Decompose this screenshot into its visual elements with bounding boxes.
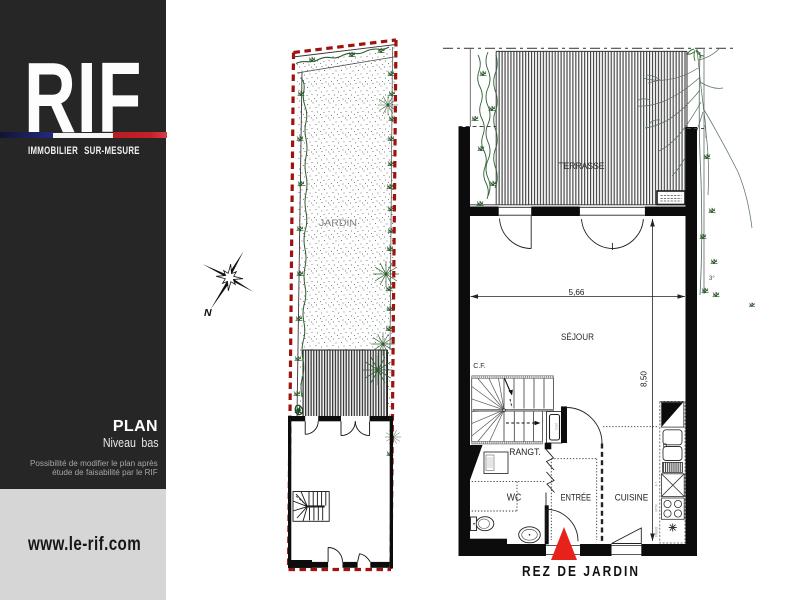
svg-text:C.F.: C.F. — [473, 363, 486, 370]
svg-text:8,50: 8,50 — [640, 371, 649, 387]
svg-text:RANGT.: RANGT. — [509, 447, 541, 457]
svg-text:WC: WC — [507, 493, 522, 504]
svg-text:A T: A T — [655, 482, 659, 487]
svg-text:JARDIN: JARDIN — [319, 218, 357, 228]
svg-text:MTM: MTM — [655, 504, 659, 512]
svg-text:N: N — [204, 307, 212, 319]
svg-text:TERRASSE: TERRASSE — [559, 161, 605, 171]
svg-text:5,66: 5,66 — [569, 288, 585, 297]
svg-text:TGBT: TGBT — [555, 422, 559, 430]
svg-text:CUISINE: CUISINE — [615, 492, 649, 503]
svg-text:REZ DE JARDIN: REZ DE JARDIN — [522, 564, 640, 580]
svg-text:3°: 3° — [709, 276, 715, 282]
svg-text:FRIGO: FRIGO — [655, 526, 659, 537]
svg-text:ENTRÉE: ENTRÉE — [561, 492, 592, 503]
svg-text:SÉJOUR: SÉJOUR — [561, 332, 594, 343]
